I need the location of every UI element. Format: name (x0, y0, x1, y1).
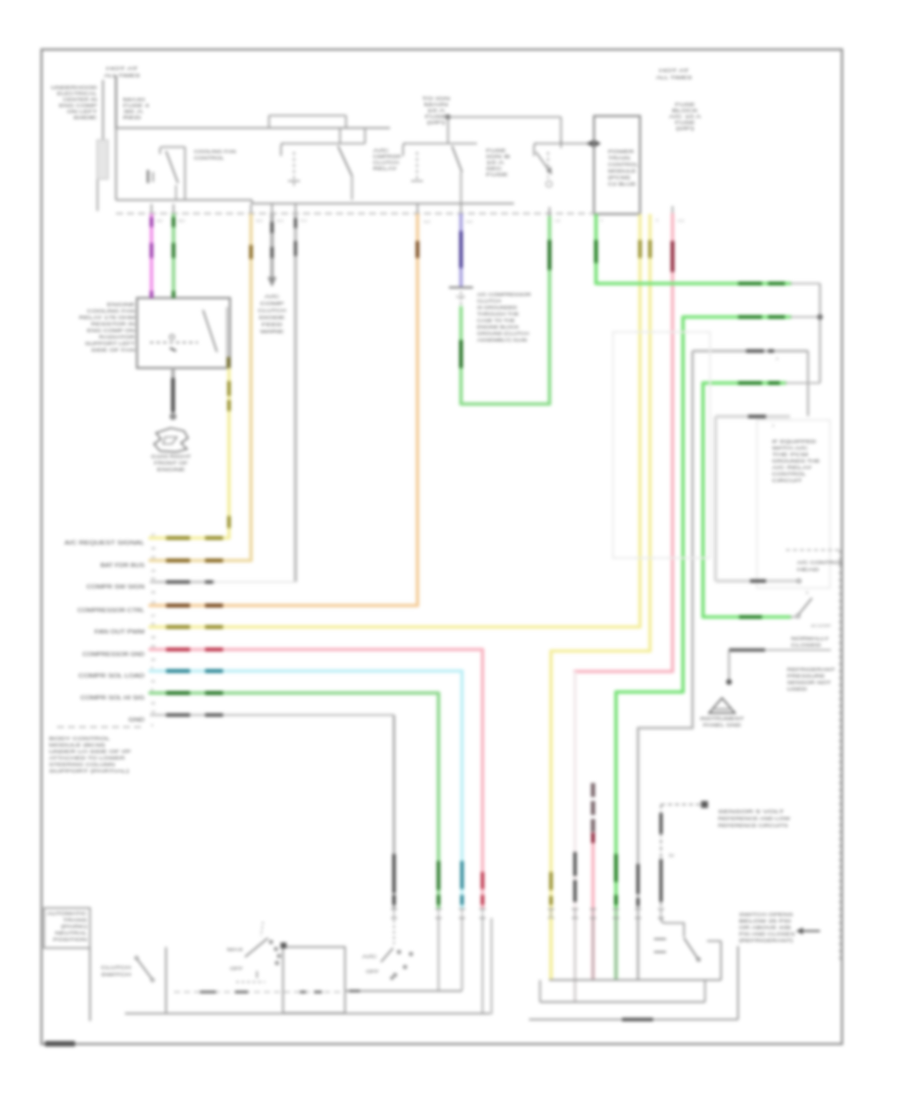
svg-text:MAX: MAX (227, 947, 243, 952)
svg-text:CLUTCH: CLUTCH (373, 160, 399, 165)
svg-text:STEERING COLUMN: STEERING COLUMN (49, 762, 115, 767)
svg-text:ENGINE: ENGINE (157, 467, 185, 472)
svg-text:31: 31 (151, 680, 155, 684)
svg-text:1: 1 (601, 219, 603, 223)
svg-text:TRAIN: TRAIN (608, 156, 630, 161)
svg-text:SIDE: SIDE (73, 115, 97, 120)
svg-text:COOLING FAN: COOLING FAN (194, 149, 237, 155)
svg-text:ALL TIMES: ALL TIMES (104, 73, 141, 79)
svg-text:FUSE: FUSE (486, 172, 508, 177)
svg-text:AUTOMATIC: AUTOMATIC (47, 911, 87, 916)
svg-text:CMPRSR: CMPRSR (373, 154, 402, 159)
svg-text:CLUTCH: CLUTCH (258, 308, 286, 313)
svg-text:G103 RIGHT: G103 RIGHT (151, 454, 191, 459)
svg-text:CLUTCH: CLUTCH (101, 965, 131, 970)
svg-text:5: 5 (806, 591, 808, 595)
svg-text:E 2: E 2 (278, 219, 284, 223)
svg-text:HOT AT: HOT AT (106, 66, 138, 72)
svg-text:5V: 5V (669, 853, 674, 858)
svg-text:A/C CONTROL: A/C CONTROL (797, 560, 844, 565)
svg-text:30 A: 30 A (123, 109, 145, 114)
svg-text:BLOCK: BLOCK (672, 108, 699, 113)
svg-text:FUSE: FUSE (675, 120, 695, 125)
svg-text:2: 2 (776, 356, 778, 361)
svg-text:IGN B: IGN B (486, 154, 510, 159)
svg-text:OFF: OFF (366, 969, 380, 974)
svg-text:ON LEFT: ON LEFT (67, 109, 97, 114)
svg-text:CENTER IN: CENTER IN (63, 97, 97, 102)
svg-text:COMPRESSOR CTRL: COMPRESSOR CTRL (78, 608, 145, 614)
svg-text:THE PCM: THE PCM (772, 452, 808, 457)
svg-text:GND: GND (129, 718, 145, 724)
svg-text:NORMALLY: NORMALLY (791, 636, 829, 641)
svg-text:ATTACHED TO LOWER: ATTACHED TO LOWER (49, 756, 126, 761)
svg-text:COMP: COMP (260, 301, 284, 306)
svg-text:FUSE 4: FUSE 4 (123, 103, 150, 108)
svg-text:FEED: FEED (262, 322, 284, 327)
svg-text:TO IGN: TO IGN (422, 96, 450, 101)
svg-text:ENGINE BLOCK: ENGINE BLOCK (477, 325, 519, 330)
svg-text:INSTRUMENT: INSTRUMENT (700, 716, 744, 721)
svg-text:CIRCUIT: CIRCUIT (772, 478, 802, 483)
svg-text:FAN OUT PWM: FAN OUT PWM (95, 630, 145, 636)
svg-text:GROUNDS THE: GROUNDS THE (772, 459, 820, 464)
svg-text:COOLING FAN: COOLING FAN (87, 309, 135, 314)
svg-text:CONTROL: CONTROL (194, 156, 224, 162)
svg-text:MAIN: MAIN (424, 102, 448, 107)
svg-text:IF EQUIPPED: IF EQUIPPED (772, 439, 817, 444)
svg-text:COMPR SW SIGN: COMPR SW SIGN (87, 585, 145, 591)
svg-text:F 2: F 2 (301, 219, 307, 223)
svg-text:C 2: C 2 (678, 219, 684, 223)
svg-text:10 A: 10 A (486, 160, 506, 165)
svg-text:26: 26 (151, 591, 155, 595)
svg-text:A/C RELAY: A/C RELAY (772, 465, 812, 470)
svg-text:B 2: B 2 (179, 219, 185, 223)
svg-text:19: 19 (151, 569, 155, 573)
svg-text:CONTROL: CONTROL (608, 162, 639, 167)
svg-text:FUSE: FUSE (486, 148, 506, 153)
svg-text:4: 4 (151, 724, 153, 728)
svg-text:TRANS: TRANS (63, 918, 87, 923)
svg-text:WITH A/C: WITH A/C (772, 446, 809, 451)
svg-text:SENSOR NOT: SENSOR NOT (787, 680, 831, 685)
svg-text:POWER: POWER (608, 149, 635, 154)
svg-text:IS GROUNDED: IS GROUNDED (477, 305, 518, 310)
svg-text:29: 29 (151, 658, 155, 662)
svg-text:A/C: A/C (373, 148, 390, 153)
svg-text:63: 63 (151, 645, 155, 649)
svg-text:A/C CUTOFF: A/C CUTOFF (811, 624, 832, 628)
svg-text:BAT FDR BUS: BAT FDR BUS (101, 563, 145, 569)
svg-text:11: 11 (151, 622, 155, 626)
svg-text:REFERENCE CIRCUITS: REFERENCE CIRCUITS (718, 823, 788, 828)
svg-text:CONTROL: CONTROL (772, 472, 807, 477)
svg-text:9: 9 (151, 666, 153, 670)
svg-text:GROUND (CLUTCH: GROUND (CLUTCH (477, 331, 529, 336)
svg-text:OFF: OFF (230, 966, 244, 971)
svg-text:H 2: H 2 (467, 220, 473, 224)
svg-text:(I/P): (I/P) (676, 126, 695, 131)
svg-text:SWITCH OPENS: SWITCH OPENS (739, 912, 793, 917)
svg-text:ASSEMBLY) S146: ASSEMBLY) S146 (477, 338, 528, 343)
svg-text:PANEL GND: PANEL GND (703, 723, 741, 728)
svg-text:BODY CONTROL: BODY CONTROL (49, 736, 111, 741)
svg-text:HOT AT: HOT AT (659, 68, 689, 74)
svg-text:ALL TIMES: ALL TIMES (656, 75, 693, 81)
svg-text:BELOW 25 PSI: BELOW 25 PSI (739, 919, 791, 924)
svg-text:COMPR SOL LOAD: COMPR SOL LOAD (79, 674, 145, 680)
svg-text:A/C: A/C (265, 294, 281, 299)
svg-text:(PARK): (PARK) (61, 924, 88, 929)
svg-text:USED: USED (787, 687, 808, 692)
svg-text:FUSE: FUSE (425, 114, 447, 119)
svg-text:ENGINE: ENGINE (107, 302, 135, 307)
svg-text:28: 28 (151, 636, 155, 640)
svg-text:G 2: G 2 (424, 220, 430, 224)
svg-text:RADIATOR: RADIATOR (99, 335, 136, 340)
svg-text:SUPPORT (PARTIAL): SUPPORT (PARTIAL) (49, 769, 130, 774)
svg-text:12: 12 (151, 710, 155, 714)
svg-text:A 2: A 2 (157, 219, 163, 223)
svg-text:MODULE (BCM): MODULE (BCM) (49, 743, 106, 748)
svg-text:COMPRESSOR GND: COMPRESSOR GND (83, 652, 145, 658)
svg-text:23: 23 (151, 556, 155, 560)
svg-text:PRESSURE: PRESSURE (787, 674, 825, 679)
svg-text:CLUTCH: CLUTCH (477, 299, 501, 304)
svg-text:18: 18 (151, 547, 155, 551)
svg-text:RESISTOR IN: RESISTOR IN (91, 322, 135, 327)
svg-text:REFRIGERANT: REFRIGERANT (787, 667, 835, 672)
svg-text:A/C COMPRESSOR: A/C COMPRESSOR (477, 292, 532, 297)
svg-text:PSI AND CLOSES: PSI AND CLOSES (739, 932, 795, 937)
svg-text:SIDE OF FAN: SIDE OF FAN (91, 348, 135, 353)
svg-text:COMPR SOL HI SIG: COMPR SOL HI SIG (81, 696, 145, 702)
svg-text:13: 13 (151, 601, 155, 605)
svg-text:FRONT OF: FRONT OF (154, 461, 188, 466)
svg-text:27: 27 (151, 614, 155, 618)
svg-text:A/C 10 A: A/C 10 A (669, 114, 702, 119)
svg-text:10 A: 10 A (427, 108, 447, 113)
svg-text:32: 32 (151, 702, 155, 706)
svg-text:MAXI: MAXI (123, 97, 145, 102)
svg-text:THROUGH THE: THROUGH THE (477, 312, 519, 317)
svg-text:A/C: A/C (362, 954, 377, 959)
svg-text:WIRE: WIRE (260, 329, 284, 334)
svg-text:SWITCH: SWITCH (101, 972, 131, 977)
svg-text:J 2: J 2 (555, 219, 560, 223)
svg-text:CASE TO THE: CASE TO THE (477, 318, 515, 323)
svg-text:(PCM): (PCM) (608, 175, 631, 180)
svg-text:OR ABOVE 435: OR ABOVE 435 (739, 925, 792, 930)
svg-text:UNDERHOOD: UNDERHOOD (51, 85, 98, 90)
svg-text:ENG COMP ON: ENG COMP ON (87, 328, 135, 333)
svg-text:FUSE: FUSE (675, 102, 695, 107)
svg-text:ENG COMP: ENG COMP (59, 103, 97, 108)
svg-text:UNDER LH SIDE OF I/P: UNDER LH SIDE OF I/P (49, 749, 131, 754)
svg-text:SEC: SEC (486, 166, 503, 171)
svg-text:17: 17 (151, 533, 155, 537)
svg-text:A/C REQUEST SIGNAL: A/C REQUEST SIGNAL (65, 541, 145, 547)
svg-text:(I/P): (I/P) (427, 120, 446, 125)
svg-text:REFERENCE AND LOW: REFERENCE AND LOW (718, 816, 791, 821)
svg-text:ELECTRICAL: ELECTRICAL (57, 91, 98, 96)
svg-text:HEAD: HEAD (797, 567, 819, 572)
svg-text:POSITION: POSITION (53, 937, 87, 942)
svg-text:DIODE: DIODE (259, 315, 285, 320)
svg-text:RELAY 175 OHM: RELAY 175 OHM (79, 315, 135, 320)
svg-text:NEUTRAL: NEUTRAL (55, 931, 88, 936)
svg-text:CLOSED: CLOSED (791, 643, 822, 648)
svg-text:8: 8 (151, 688, 153, 692)
svg-text:RED: RED (123, 115, 142, 120)
svg-text:SENSOR 5 VOLT: SENSOR 5 VOLT (718, 809, 785, 814)
svg-text:MODULE: MODULE (608, 169, 636, 174)
svg-text:C2 BLUE: C2 BLUE (608, 182, 636, 187)
svg-text:2: 2 (656, 219, 658, 223)
svg-text:D 2: D 2 (257, 219, 263, 223)
svg-text:(REFRIGERANT): (REFRIGERANT) (739, 938, 794, 943)
svg-text:2: 2 (772, 423, 774, 428)
svg-text:RELAY: RELAY (373, 166, 398, 171)
svg-text:54: 54 (151, 577, 155, 581)
svg-text:SUPPORT LEFT: SUPPORT LEFT (85, 341, 135, 346)
